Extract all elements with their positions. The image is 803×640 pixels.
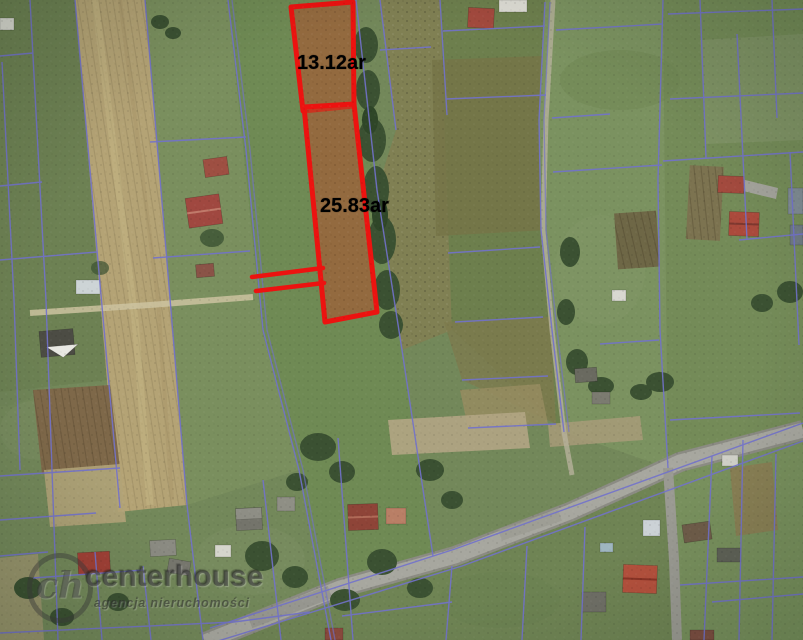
watermark-logo-initials: ch <box>36 565 84 607</box>
vignette-overlay <box>0 0 803 640</box>
parcel-area-label-25ar: 25.83ar <box>320 196 389 216</box>
watermark-brand-text: centerhouse <box>85 560 263 594</box>
aerial-parcel-map-image: 13.12ar 25.83ar ch centerhouse agencja n… <box>0 0 803 640</box>
watermark-logo-icon: ch <box>27 553 93 623</box>
aerial-basemap <box>0 0 803 640</box>
watermark-tagline-text: agencja nieruchomości <box>94 596 250 610</box>
parcel-area-label-13ar: 13.12ar <box>297 53 366 73</box>
